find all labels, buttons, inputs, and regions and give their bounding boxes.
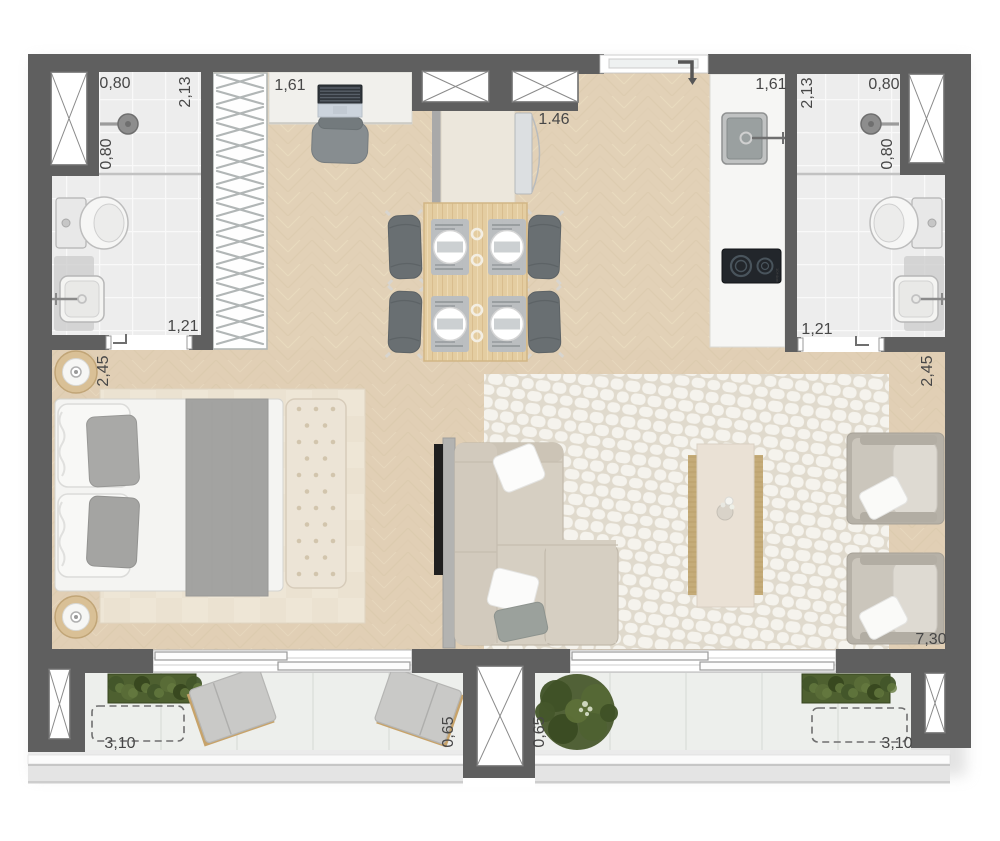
svg-text:0,80: 0,80 (98, 138, 115, 169)
svg-text:3,10: 3,10 (104, 735, 135, 752)
svg-text:1,61: 1,61 (274, 77, 305, 94)
svg-text:1.46: 1.46 (538, 111, 569, 128)
svg-text:2,45: 2,45 (95, 355, 112, 386)
svg-text:2,13: 2,13 (799, 77, 816, 108)
svg-text:0,65: 0,65 (440, 716, 457, 747)
svg-text:0,80: 0,80 (99, 75, 130, 92)
svg-text:0,80: 0,80 (868, 76, 899, 93)
svg-text:7,30: 7,30 (915, 631, 946, 648)
svg-text:0,80: 0,80 (879, 138, 896, 169)
svg-text:2,45: 2,45 (919, 355, 936, 386)
svg-text:1,61: 1,61 (755, 76, 786, 93)
svg-text:10+4cm: 10+4cm (775, 268, 780, 283)
svg-text:0,65: 0,65 (531, 716, 548, 747)
svg-text:2,13: 2,13 (177, 76, 194, 107)
svg-text:3,10: 3,10 (881, 735, 912, 752)
svg-text:1,21: 1,21 (167, 318, 198, 335)
svg-text:1,21: 1,21 (801, 321, 832, 338)
